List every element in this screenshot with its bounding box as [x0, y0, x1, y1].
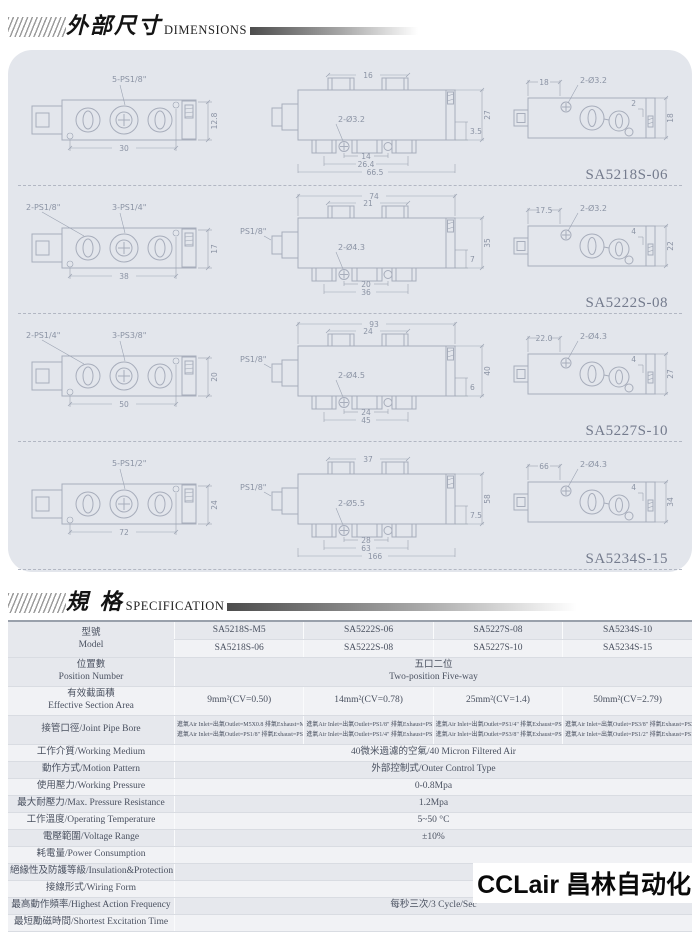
spec-row: 使用壓力/Working Pressure 0-0.8Mpa	[8, 779, 692, 796]
spec-row-value: 1.2Mpa	[175, 796, 693, 813]
dim-right-outer: 18	[655, 96, 675, 140]
svg-text:34: 34	[666, 497, 675, 507]
svg-text:7: 7	[470, 255, 475, 264]
pilot-port-label: PS1/8"	[240, 355, 271, 368]
dim-top-tabs: 21	[326, 199, 410, 208]
position-value: 五口二位 Two-position Five-way	[175, 658, 693, 687]
spec-row-value: 40微米過濾的空氣/40 Micron Filtered Air	[175, 745, 693, 762]
front-view-drawing: 2-PS1/4" 3-PS3/8" 50 20	[26, 331, 219, 409]
dim-right-outer: 34	[655, 480, 675, 524]
dim-top: 22.0	[526, 334, 562, 352]
svg-text:27: 27	[666, 369, 675, 379]
svg-text:2-Ø3.2: 2-Ø3.2	[338, 114, 365, 124]
svg-text:45: 45	[361, 416, 371, 425]
svg-text:37: 37	[363, 455, 373, 464]
dim-top: 18	[526, 78, 562, 96]
svg-text:2-Ø3.2: 2-Ø3.2	[580, 75, 607, 85]
hole-callout: 2-Ø4.3	[336, 242, 365, 269]
spec-row-label: 最高動作頻率/Highest Action Frequency	[8, 898, 175, 915]
hole-callout: 2-Ø4.3	[568, 331, 607, 359]
specification-title-en: SPECIFICATION	[126, 598, 225, 614]
spec-row-value	[175, 847, 693, 864]
bore-line: 進氣Air Inlet=出氣Outlet=PS1/4" 排氣Exhaust=PS…	[436, 720, 560, 730]
spec-row-value: ±10%	[175, 830, 693, 847]
dim-inner: 4	[631, 227, 643, 245]
spec-row: 耗電量/Power Consumption	[8, 847, 692, 864]
hatch-stripes-icon	[8, 17, 66, 37]
dim-inner: 4	[631, 483, 643, 501]
bore-line: 進氣Air Inlet=出氣Outlet=PS3/8" 排氣Exhaust=PS…	[565, 720, 690, 730]
spec-row: 最短勵磁時間/Shortest Excitation Time	[8, 915, 692, 932]
svg-text:2-Ø5.5: 2-Ø5.5	[338, 498, 365, 508]
hole-callout: 2-Ø4.5	[336, 370, 365, 397]
spec-row-value	[175, 915, 693, 932]
front-view-drawing: 2-PS1/8" 3-PS1/4" 38 17	[26, 203, 219, 281]
spec-row: 動作方式/Motion Pattern 外部控制式/Outer Control …	[8, 762, 692, 779]
section-area-cell: 25mm²(CV=1.4)	[433, 687, 562, 716]
dim-right: 12.8	[198, 100, 219, 142]
model-number-label: SA5234S-15	[585, 551, 668, 568]
position-value-cjk: 五口二位	[177, 660, 690, 672]
svg-text:5-PS1/8": 5-PS1/8"	[112, 75, 146, 84]
spec-row-label: 絕緣性及防護等級/Insulation&Protection Class	[8, 864, 175, 881]
svg-text:2-Ø4.5: 2-Ø4.5	[338, 370, 365, 380]
valve-technical-drawing: 5-PS1/8" 30 12.8	[18, 60, 678, 178]
bore-line: 進氣Air Inlet=出氣Outlet=PS1/8" 排氣Exhaust=PS…	[306, 720, 430, 730]
dim-top-tabs: 24	[326, 327, 410, 336]
spec-row-value: 0-0.8Mpa	[175, 779, 693, 796]
dimensions-title-en: DIMENSIONS	[164, 22, 247, 38]
svg-text:72: 72	[119, 528, 129, 537]
dim-top-tabs: 16	[326, 71, 410, 80]
pipe-bore-cell: 進氣Air Inlet=出氣Outlet=PS3/8" 排氣Exhaust=PS…	[563, 716, 692, 745]
svg-text:16: 16	[363, 71, 373, 80]
svg-text:40: 40	[483, 366, 492, 376]
model-number-label: SA5218S-06	[585, 167, 668, 184]
svg-text:27: 27	[483, 110, 492, 120]
svg-text:6: 6	[470, 383, 475, 392]
bore-line: 進氣Air Inlet=出氣Outlet=M5X0.8 排氣Exhaust=M5…	[177, 720, 301, 730]
bore-line: 進氣Air Inlet=出氣Outlet=PS1/8" 排氣Exhaust=PS…	[177, 730, 301, 740]
spec-row: 最大耐壓力/Max. Pressure Resistance 1.2Mpa	[8, 796, 692, 813]
svg-text:38: 38	[119, 272, 129, 281]
model-cell: SA5218S-06	[175, 640, 304, 658]
spec-row-label: 電壓範圍/Voltage Range	[8, 830, 175, 847]
model-row-line1: 型號 Model SA5218S-M5 SA5222S-06 SA5227S-0…	[8, 621, 692, 640]
model-cell: SA5227S-08	[433, 621, 562, 640]
spec-row: 電壓範圍/Voltage Range ±10%	[8, 830, 692, 847]
svg-text:4: 4	[631, 355, 636, 364]
position-label-cjk: 位置數	[10, 660, 172, 672]
spec-row-value: 外部控制式/Outer Control Type	[175, 762, 693, 779]
section-area-cell: 14mm²(CV=0.78)	[304, 687, 433, 716]
hole-callout: 2-Ø3.2	[568, 203, 607, 231]
spec-row-label: 耗電量/Power Consumption	[8, 847, 175, 864]
spec-row-label: 接線形式/Wiring Form	[8, 881, 175, 898]
svg-text:2: 2	[631, 99, 636, 108]
svg-text:12.8: 12.8	[210, 112, 219, 129]
spec-row-label: 動作方式/Motion Pattern	[8, 762, 175, 779]
svg-text:24: 24	[210, 500, 219, 510]
dim-inner: 2	[631, 99, 643, 117]
dim-top-overall: 93	[296, 320, 457, 344]
svg-text:2-Ø4.3: 2-Ø4.3	[580, 459, 607, 469]
dim-right-outer: 27	[655, 352, 675, 396]
top-view-drawing: PS1/8"	[240, 455, 492, 561]
svg-text:35: 35	[483, 238, 492, 248]
model-number-label: SA5222S-08	[585, 295, 668, 312]
specification-title-cjk: 規 格	[66, 592, 124, 614]
section-area-cell: 9mm²(CV=0.50)	[175, 687, 304, 716]
spec-row-value: 5~50 °C	[175, 813, 693, 830]
dim-top: 66	[526, 462, 562, 480]
dimensions-panel: 5-PS1/8" 30 12.8	[8, 50, 692, 572]
svg-text:50: 50	[119, 400, 129, 409]
svg-text:2-PS1/8": 2-PS1/8"	[26, 203, 60, 212]
dim-top: 17.5	[526, 206, 562, 224]
model-cell: SA5218S-M5	[175, 621, 304, 640]
dim-right: 24	[198, 484, 219, 526]
brand-logo: CCLair 昌林自动化	[473, 863, 695, 903]
hole-callout: 2-Ø3.2	[336, 114, 365, 141]
section-area-cell: 50mm²(CV=2.79)	[563, 687, 692, 716]
section-area-row: 有效截面積 Effective Section Area 9mm²(CV=0.5…	[8, 687, 692, 716]
dim-right-inner: 6	[455, 378, 475, 396]
valve-technical-drawing: 5-PS1/2" 72 24 PS1	[18, 444, 678, 562]
side-view-drawing: 22.0 2-Ø4.3 4 27	[514, 331, 675, 396]
dim-top-overall: 74	[296, 192, 457, 216]
dim-right: 20	[198, 356, 219, 398]
dim-right: 17	[198, 228, 219, 270]
section-area-label-en: Effective Section Area	[10, 701, 172, 713]
side-view-drawing: 66 2-Ø4.3 4 34	[514, 459, 675, 524]
hatch-stripes-icon	[8, 593, 66, 613]
svg-text:3-PS1/4": 3-PS1/4"	[112, 203, 146, 212]
dim-inner: 4	[631, 355, 643, 373]
valve-technical-drawing: 2-PS1/8" 3-PS1/4" 38 17	[18, 188, 678, 306]
port-label-a: 2-PS1/8"	[26, 203, 84, 236]
svg-text:166: 166	[368, 552, 383, 561]
svg-text:66: 66	[539, 462, 549, 471]
pilot-port-label: PS1/8"	[240, 483, 271, 496]
port-label-a: 2-PS1/4"	[26, 331, 84, 364]
pipe-bore-row: 接管口徑/Joint Pipe Bore 進氣Air Inlet=出氣Outle…	[8, 716, 692, 745]
model-cell: SA5222S-06	[304, 621, 433, 640]
svg-text:7.5: 7.5	[470, 511, 482, 520]
dim-right-outer: 22	[655, 224, 675, 268]
svg-text:18: 18	[539, 78, 549, 87]
svg-text:2-Ø3.2: 2-Ø3.2	[580, 203, 607, 213]
drawing-row: 5-PS1/2" 72 24 PS1	[18, 442, 682, 570]
dimensions-title-cjk: 外部尺寸	[66, 16, 162, 38]
svg-text:2-Ø4.3: 2-Ø4.3	[338, 242, 365, 252]
dim-bottom-3: 166	[298, 548, 455, 561]
pipe-bore-label: 接管口徑/Joint Pipe Bore	[8, 716, 175, 745]
front-view-drawing: 5-PS1/8" 30 12.8	[32, 75, 219, 153]
model-label-cjk: 型號	[10, 628, 172, 640]
svg-text:4: 4	[631, 483, 636, 492]
dim-right-inner: 7.5	[455, 506, 482, 524]
svg-text:20: 20	[210, 372, 219, 382]
model-cell: SA5227S-10	[433, 640, 562, 658]
dim-top-tabs: 37	[326, 455, 410, 464]
bore-line: 進氣Air Inlet=出氣Outlet=PS1/2" 排氣Exhaust=PS…	[565, 730, 690, 740]
side-view-drawing: 18 2-Ø3.2 2 18	[514, 75, 675, 140]
dim-right-inner: 7	[455, 250, 475, 268]
pipe-bore-cell: 進氣Air Inlet=出氣Outlet=PS1/8" 排氣Exhaust=PS…	[304, 716, 433, 745]
svg-text:21: 21	[363, 199, 373, 208]
drawing-row: 2-PS1/8" 3-PS1/4" 38 17	[18, 186, 682, 314]
drawing-row: 2-PS1/4" 3-PS3/8" 50 20	[18, 314, 682, 442]
drawing-row: 5-PS1/8" 30 12.8	[18, 58, 682, 186]
pipe-bore-cell: 進氣Air Inlet=出氣Outlet=M5X0.8 排氣Exhaust=M5…	[175, 716, 304, 745]
svg-text:24: 24	[363, 327, 373, 336]
svg-text:5-PS1/2": 5-PS1/2"	[112, 459, 146, 468]
svg-text:4: 4	[631, 227, 636, 236]
svg-text:17: 17	[210, 244, 219, 254]
top-view-drawing: PS1/8"	[240, 320, 492, 425]
valve-technical-drawing: 2-PS1/4" 3-PS3/8" 50 20	[18, 316, 678, 434]
svg-text:58: 58	[483, 494, 492, 504]
pilot-port-label: PS1/8"	[240, 227, 271, 240]
top-view-drawing: PS1/8"	[240, 192, 492, 297]
spec-row-label: 最大耐壓力/Max. Pressure Resistance	[8, 796, 175, 813]
svg-text:PS1/8": PS1/8"	[240, 227, 266, 236]
model-cell: SA5234S-15	[563, 640, 692, 658]
svg-text:3.5: 3.5	[470, 127, 482, 136]
svg-text:3-PS3/8": 3-PS3/8"	[112, 331, 146, 340]
bore-line: 進氣Air Inlet=出氣Outlet=PS1/4" 排氣Exhaust=PS…	[306, 730, 430, 740]
dim-right-inner: 3.5	[455, 122, 482, 140]
top-view-drawing: 2-Ø3.2 16 14	[272, 71, 492, 177]
spec-row-label: 使用壓力/Working Pressure	[8, 779, 175, 796]
dim-bottom-3: 66.5	[298, 164, 455, 177]
header-gradient-bar	[250, 27, 418, 35]
svg-text:30: 30	[119, 144, 129, 153]
svg-text:22.0: 22.0	[536, 334, 553, 343]
svg-text:PS1/8": PS1/8"	[240, 483, 266, 492]
spec-row: 工作介質/Working Medium 40微米過濾的空氣/40 Micron …	[8, 745, 692, 762]
svg-text:36: 36	[361, 288, 371, 297]
position-label: 位置數 Position Number	[8, 658, 175, 687]
svg-text:22: 22	[666, 241, 675, 251]
model-label-en: Model	[10, 640, 172, 652]
spec-row-label: 最短勵磁時間/Shortest Excitation Time	[8, 915, 175, 932]
position-label-en: Position Number	[10, 672, 172, 684]
hole-callout: 2-Ø5.5	[336, 498, 365, 525]
spec-row: 工作溫度/Operating Temperature 5~50 °C	[8, 813, 692, 830]
svg-text:17.5: 17.5	[536, 206, 553, 215]
svg-text:2-Ø4.3: 2-Ø4.3	[580, 331, 607, 341]
side-view-drawing: 17.5 2-Ø3.2 4 22	[514, 203, 675, 268]
svg-text:2-PS1/4": 2-PS1/4"	[26, 331, 60, 340]
header-gradient-bar	[227, 603, 577, 611]
model-cell: SA5222S-08	[304, 640, 433, 658]
spec-row-label: 工作溫度/Operating Temperature	[8, 813, 175, 830]
front-view-drawing: 5-PS1/2" 72 24	[32, 459, 219, 537]
bore-line: 進氣Air Inlet=出氣Outlet=PS3/8" 排氣Exhaust=PS…	[436, 730, 560, 740]
model-label: 型號 Model	[8, 621, 175, 658]
model-cell: SA5234S-10	[563, 621, 692, 640]
model-number-label: SA5227S-10	[585, 423, 668, 440]
spec-row-label: 工作介質/Working Medium	[8, 745, 175, 762]
specification-header: 規 格 SPECIFICATION	[8, 586, 700, 614]
pipe-bore-cell: 進氣Air Inlet=出氣Outlet=PS1/4" 排氣Exhaust=PS…	[433, 716, 562, 745]
svg-text:66.5: 66.5	[367, 168, 384, 177]
svg-text:18: 18	[666, 113, 675, 123]
hole-callout: 2-Ø3.2	[568, 75, 607, 103]
section-area-label-cjk: 有效截面積	[10, 689, 172, 701]
position-value-en: Two-position Five-way	[177, 672, 690, 684]
section-area-label: 有效截面積 Effective Section Area	[8, 687, 175, 716]
position-number-row: 位置數 Position Number 五口二位 Two-position Fi…	[8, 658, 692, 687]
svg-text:PS1/8": PS1/8"	[240, 355, 266, 364]
dimensions-header: 外部尺寸 DIMENSIONS	[8, 10, 700, 38]
hole-callout: 2-Ø4.3	[568, 459, 607, 487]
